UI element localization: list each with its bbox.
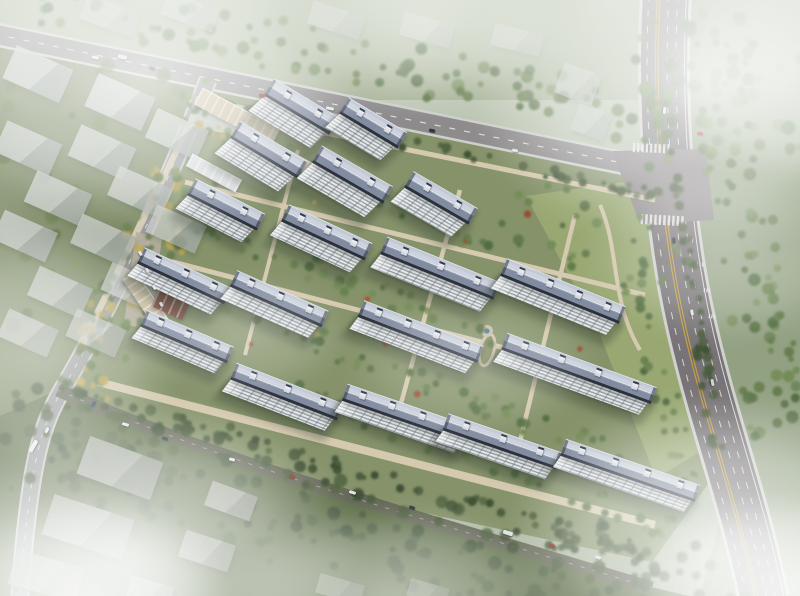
tree: [599, 521, 609, 531]
tree: [26, 429, 33, 436]
tree: [728, 183, 736, 191]
tree: [325, 68, 332, 75]
tree: [692, 571, 701, 580]
tree: [237, 41, 250, 54]
tree: [61, 451, 70, 460]
tree: [577, 346, 582, 351]
tree: [464, 151, 472, 159]
tree: [123, 319, 131, 327]
tree: [554, 530, 562, 538]
tree: [569, 252, 576, 259]
tree: [529, 99, 540, 110]
tree: [712, 103, 721, 112]
tree: [314, 349, 319, 354]
tree: [121, 354, 129, 362]
aerial-site-rendering: [0, 0, 800, 596]
tree: [697, 308, 704, 315]
tree: [698, 337, 708, 347]
tree: [638, 257, 647, 266]
tree: [8, 485, 14, 491]
tree: [462, 544, 469, 551]
tree: [480, 528, 493, 541]
tree: [776, 64, 785, 73]
tree: [774, 265, 782, 273]
tree: [197, 38, 209, 50]
tree: [707, 152, 715, 160]
tree: [456, 87, 465, 96]
tree: [690, 471, 695, 476]
tree: [291, 520, 303, 532]
tree: [781, 400, 789, 408]
tree: [476, 324, 486, 334]
tree: [173, 413, 182, 422]
tree: [675, 201, 684, 210]
tree: [791, 393, 800, 402]
tree: [412, 525, 424, 537]
tree: [267, 558, 274, 565]
tree: [149, 513, 156, 520]
tree: [428, 314, 438, 324]
tree: [91, 383, 96, 388]
tree: [678, 222, 687, 231]
tree: [505, 565, 514, 574]
tree: [626, 189, 632, 195]
tree: [390, 471, 397, 478]
tree: [129, 403, 138, 412]
vehicle: [91, 55, 98, 59]
tree: [691, 540, 702, 551]
tree: [786, 411, 799, 424]
tree: [480, 239, 487, 246]
tree: [87, 361, 96, 370]
tree: [726, 158, 736, 168]
tree: [788, 356, 794, 362]
tree: [519, 428, 526, 435]
tree: [582, 250, 590, 258]
tree: [573, 213, 579, 219]
vehicle: [672, 237, 675, 243]
tree: [463, 239, 468, 244]
tree: [661, 428, 668, 435]
tree: [254, 51, 263, 60]
tree: [672, 73, 686, 87]
tree: [358, 532, 367, 541]
tree: [264, 439, 271, 446]
tree: [746, 208, 755, 217]
tree: [355, 358, 362, 365]
vehicle: [429, 128, 435, 132]
tree: [411, 74, 424, 87]
tree: [626, 113, 638, 125]
tree: [163, 502, 173, 512]
tree: [329, 561, 338, 570]
tree: [164, 476, 174, 486]
tree: [307, 514, 314, 521]
tree: [565, 520, 573, 528]
tree: [709, 27, 719, 37]
tree: [646, 324, 652, 330]
tree: [685, 236, 692, 243]
tree: [332, 455, 339, 462]
tree: [665, 58, 679, 72]
tree: [105, 396, 111, 402]
tree: [11, 390, 20, 399]
tree: [272, 254, 277, 259]
tree: [203, 435, 211, 443]
tree: [310, 26, 317, 33]
tree: [702, 370, 708, 376]
tree: [688, 79, 701, 92]
tree: [524, 210, 531, 217]
tree: [698, 9, 708, 19]
tree: [616, 120, 624, 128]
tree: [644, 162, 654, 172]
tree: [234, 474, 248, 488]
tree: [768, 347, 774, 353]
tree: [226, 422, 235, 431]
tree: [625, 542, 635, 552]
tree: [645, 98, 656, 109]
tree: [188, 426, 195, 433]
tree: [366, 494, 375, 503]
tree: [459, 387, 469, 397]
tree: [74, 388, 85, 399]
tree: [568, 498, 576, 506]
tree: [748, 273, 761, 286]
tree: [521, 419, 530, 428]
tree: [2, 100, 15, 113]
tree: [340, 357, 346, 363]
pond: [484, 328, 489, 333]
tree: [673, 427, 679, 433]
tree: [685, 275, 691, 281]
tree: [768, 293, 779, 304]
tree: [701, 117, 713, 129]
tree: [170, 167, 180, 177]
tree: [453, 69, 461, 77]
tree: [294, 461, 306, 473]
tree: [754, 139, 766, 151]
tree: [626, 274, 634, 282]
tree: [270, 519, 277, 526]
tree: [396, 574, 405, 583]
tree: [476, 575, 485, 584]
tree: [132, 212, 141, 221]
tree: [359, 511, 366, 518]
tree: [309, 64, 321, 76]
tree: [673, 192, 679, 198]
tree: [657, 135, 667, 145]
tree: [641, 137, 648, 144]
tree: [613, 513, 622, 522]
tree: [246, 24, 253, 31]
tree: [744, 168, 757, 181]
tree: [771, 369, 783, 381]
tree: [311, 538, 317, 544]
tree: [478, 81, 484, 87]
tree: [352, 78, 360, 86]
tree: [5, 83, 15, 93]
tree: [391, 562, 404, 575]
tree: [423, 384, 431, 392]
tree: [663, 155, 673, 165]
tree: [263, 19, 271, 27]
tree: [741, 267, 748, 274]
tree: [250, 37, 258, 45]
tree: [168, 445, 179, 456]
tree: [294, 514, 302, 522]
tree: [333, 281, 342, 290]
tree: [114, 397, 123, 406]
tree: [502, 409, 511, 418]
tree: [714, 198, 721, 205]
tree: [487, 340, 495, 348]
tree: [498, 220, 505, 227]
tree: [752, 250, 759, 257]
tree: [147, 165, 155, 173]
tree: [48, 456, 55, 463]
tree: [742, 59, 749, 66]
tree: [308, 464, 317, 473]
tree: [135, 439, 143, 447]
tree: [463, 496, 470, 503]
tree: [712, 135, 723, 146]
tree: [513, 68, 521, 76]
tree: [416, 549, 424, 557]
tree: [683, 427, 688, 432]
tree: [299, 490, 306, 497]
tree: [783, 370, 795, 382]
tree: [727, 52, 740, 65]
tree: [746, 88, 760, 102]
tree: [667, 451, 675, 459]
tree: [380, 64, 387, 71]
tree: [72, 441, 81, 450]
tree: [473, 395, 480, 402]
tree: [497, 508, 506, 517]
tree: [558, 544, 565, 551]
tree: [732, 12, 746, 26]
tree: [304, 274, 312, 282]
tree: [25, 472, 36, 483]
tree: [709, 390, 718, 399]
tree: [690, 283, 696, 289]
vehicle: [710, 378, 714, 385]
tree: [536, 82, 543, 89]
tree: [334, 474, 347, 487]
tree: [698, 382, 706, 390]
tree: [185, 92, 193, 100]
tree: [738, 231, 746, 239]
tree: [525, 65, 535, 75]
tree: [580, 201, 591, 212]
tree: [612, 104, 625, 117]
tree: [711, 87, 722, 98]
tree: [790, 340, 796, 346]
tree: [220, 133, 227, 140]
tree: [186, 38, 192, 44]
tree: [329, 530, 337, 538]
tree: [635, 295, 645, 305]
tree: [661, 369, 667, 375]
tree: [642, 547, 652, 557]
tree: [414, 391, 421, 398]
tree: [41, 409, 53, 421]
tree: [597, 539, 604, 546]
tree: [308, 484, 315, 491]
tree: [106, 302, 116, 312]
tree: [266, 448, 273, 455]
tree: [754, 382, 765, 393]
tree: [749, 393, 758, 402]
tree: [674, 178, 679, 183]
tree: [145, 405, 156, 416]
tree: [764, 332, 776, 344]
tree: [213, 434, 225, 446]
tree: [516, 103, 524, 111]
tree: [762, 283, 774, 295]
tree: [744, 252, 752, 260]
tree: [99, 376, 109, 386]
tree: [675, 393, 681, 399]
tree: [676, 552, 687, 563]
tree: [317, 42, 326, 51]
tree: [645, 313, 652, 320]
tree: [434, 517, 443, 526]
tree: [179, 473, 187, 481]
tree: [567, 262, 576, 271]
tree: [462, 324, 468, 330]
tree: [641, 184, 647, 190]
tree: [723, 198, 731, 206]
tree: [298, 533, 304, 539]
tree: [636, 513, 646, 523]
tree: [71, 417, 81, 427]
tree: [259, 63, 265, 69]
tree: [529, 512, 537, 520]
tree: [290, 261, 298, 269]
tree: [707, 164, 714, 171]
tree: [721, 258, 728, 265]
tree: [699, 106, 706, 113]
tree: [737, 86, 746, 95]
tree: [552, 582, 561, 591]
tree: [491, 393, 499, 401]
tree: [470, 156, 477, 163]
tree: [633, 192, 640, 199]
tree: [278, 16, 288, 26]
tree: [772, 418, 782, 428]
tree: [321, 478, 330, 487]
tree: [515, 191, 523, 199]
tree: [750, 431, 760, 441]
tree: [599, 435, 606, 442]
tree: [446, 500, 457, 511]
tree: [731, 95, 745, 109]
tree: [443, 73, 450, 80]
tree: [649, 18, 657, 26]
tree: [350, 49, 356, 55]
tree: [419, 305, 426, 312]
tree: [138, 32, 145, 39]
tree: [334, 359, 340, 365]
tree: [173, 423, 182, 432]
tree: [216, 452, 223, 459]
tree: [83, 367, 88, 372]
tree: [576, 432, 585, 441]
tree: [69, 480, 82, 493]
tree: [212, 44, 220, 52]
tree: [200, 424, 207, 431]
tree: [187, 102, 192, 107]
tree: [696, 295, 703, 302]
tree: [216, 125, 221, 130]
tree: [748, 40, 759, 51]
tree: [589, 436, 596, 443]
tree: [792, 366, 800, 374]
tree: [644, 194, 651, 201]
tree: [507, 542, 519, 554]
tree: [699, 320, 704, 325]
tree: [291, 64, 301, 74]
tree: [694, 41, 701, 48]
tree: [638, 82, 652, 96]
tree: [659, 532, 665, 538]
tree: [227, 536, 233, 542]
tree: [479, 497, 487, 505]
tree: [111, 412, 122, 423]
tree: [69, 112, 76, 119]
tree: [543, 174, 548, 179]
tree: [637, 34, 645, 42]
tree: [476, 541, 485, 550]
tree: [261, 456, 272, 467]
tree: [433, 380, 440, 387]
tree: [93, 116, 108, 131]
tree: [611, 132, 622, 143]
tree: [770, 242, 780, 252]
tree: [719, 444, 726, 451]
tree: [784, 347, 794, 357]
tree: [525, 198, 533, 206]
tree: [469, 401, 478, 410]
vehicle: [662, 106, 665, 113]
tree: [753, 299, 760, 306]
tree: [627, 538, 632, 543]
tree: [76, 377, 85, 386]
tree: [71, 429, 80, 438]
tree: [517, 91, 528, 102]
tree: [727, 315, 738, 326]
tree: [667, 115, 678, 126]
tree: [660, 414, 667, 421]
tree: [647, 224, 653, 230]
vehicle: [512, 148, 518, 152]
tree: [267, 525, 273, 531]
tree: [31, 382, 43, 394]
tree: [631, 573, 638, 580]
tree: [712, 39, 720, 47]
tree: [626, 182, 632, 188]
crosswalk-north: [633, 143, 670, 153]
tree: [413, 488, 419, 494]
tree: [422, 94, 430, 102]
tree: [608, 184, 616, 192]
tree: [616, 186, 626, 196]
tree: [137, 502, 151, 516]
tree: [478, 61, 490, 73]
tree: [101, 403, 109, 411]
